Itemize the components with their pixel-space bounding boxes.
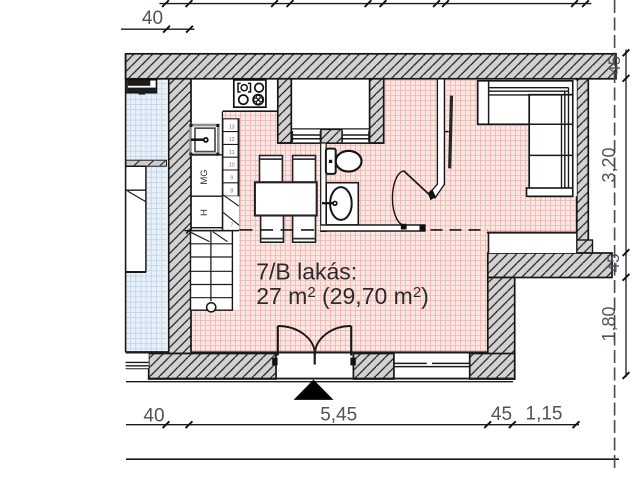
svg-text:1,80: 1,80 [599, 306, 619, 341]
svg-text:H: H [199, 209, 210, 216]
svg-text:MG: MG [199, 169, 210, 184]
svg-text:3,20: 3,20 [599, 147, 619, 182]
svg-text:11: 11 [229, 150, 234, 156]
svg-text:45: 45 [491, 404, 512, 425]
svg-text:27 m2 (29,70 m2): 27 m2 (29,70 m2) [256, 283, 429, 309]
svg-text:7: 7 [231, 223, 234, 229]
svg-text:45: 45 [604, 254, 623, 273]
svg-text:9: 9 [230, 176, 233, 182]
svg-text:40: 40 [142, 8, 163, 29]
svg-text:40: 40 [143, 405, 164, 426]
svg-text:12: 12 [229, 137, 235, 143]
svg-text:10: 10 [229, 163, 235, 169]
svg-text:13: 13 [229, 124, 235, 130]
svg-text:8: 8 [230, 188, 233, 194]
svg-text:7/B lakás:: 7/B lakás: [256, 258, 357, 284]
svg-text:1,15: 1,15 [526, 404, 563, 425]
svg-text:5,45: 5,45 [320, 404, 357, 425]
